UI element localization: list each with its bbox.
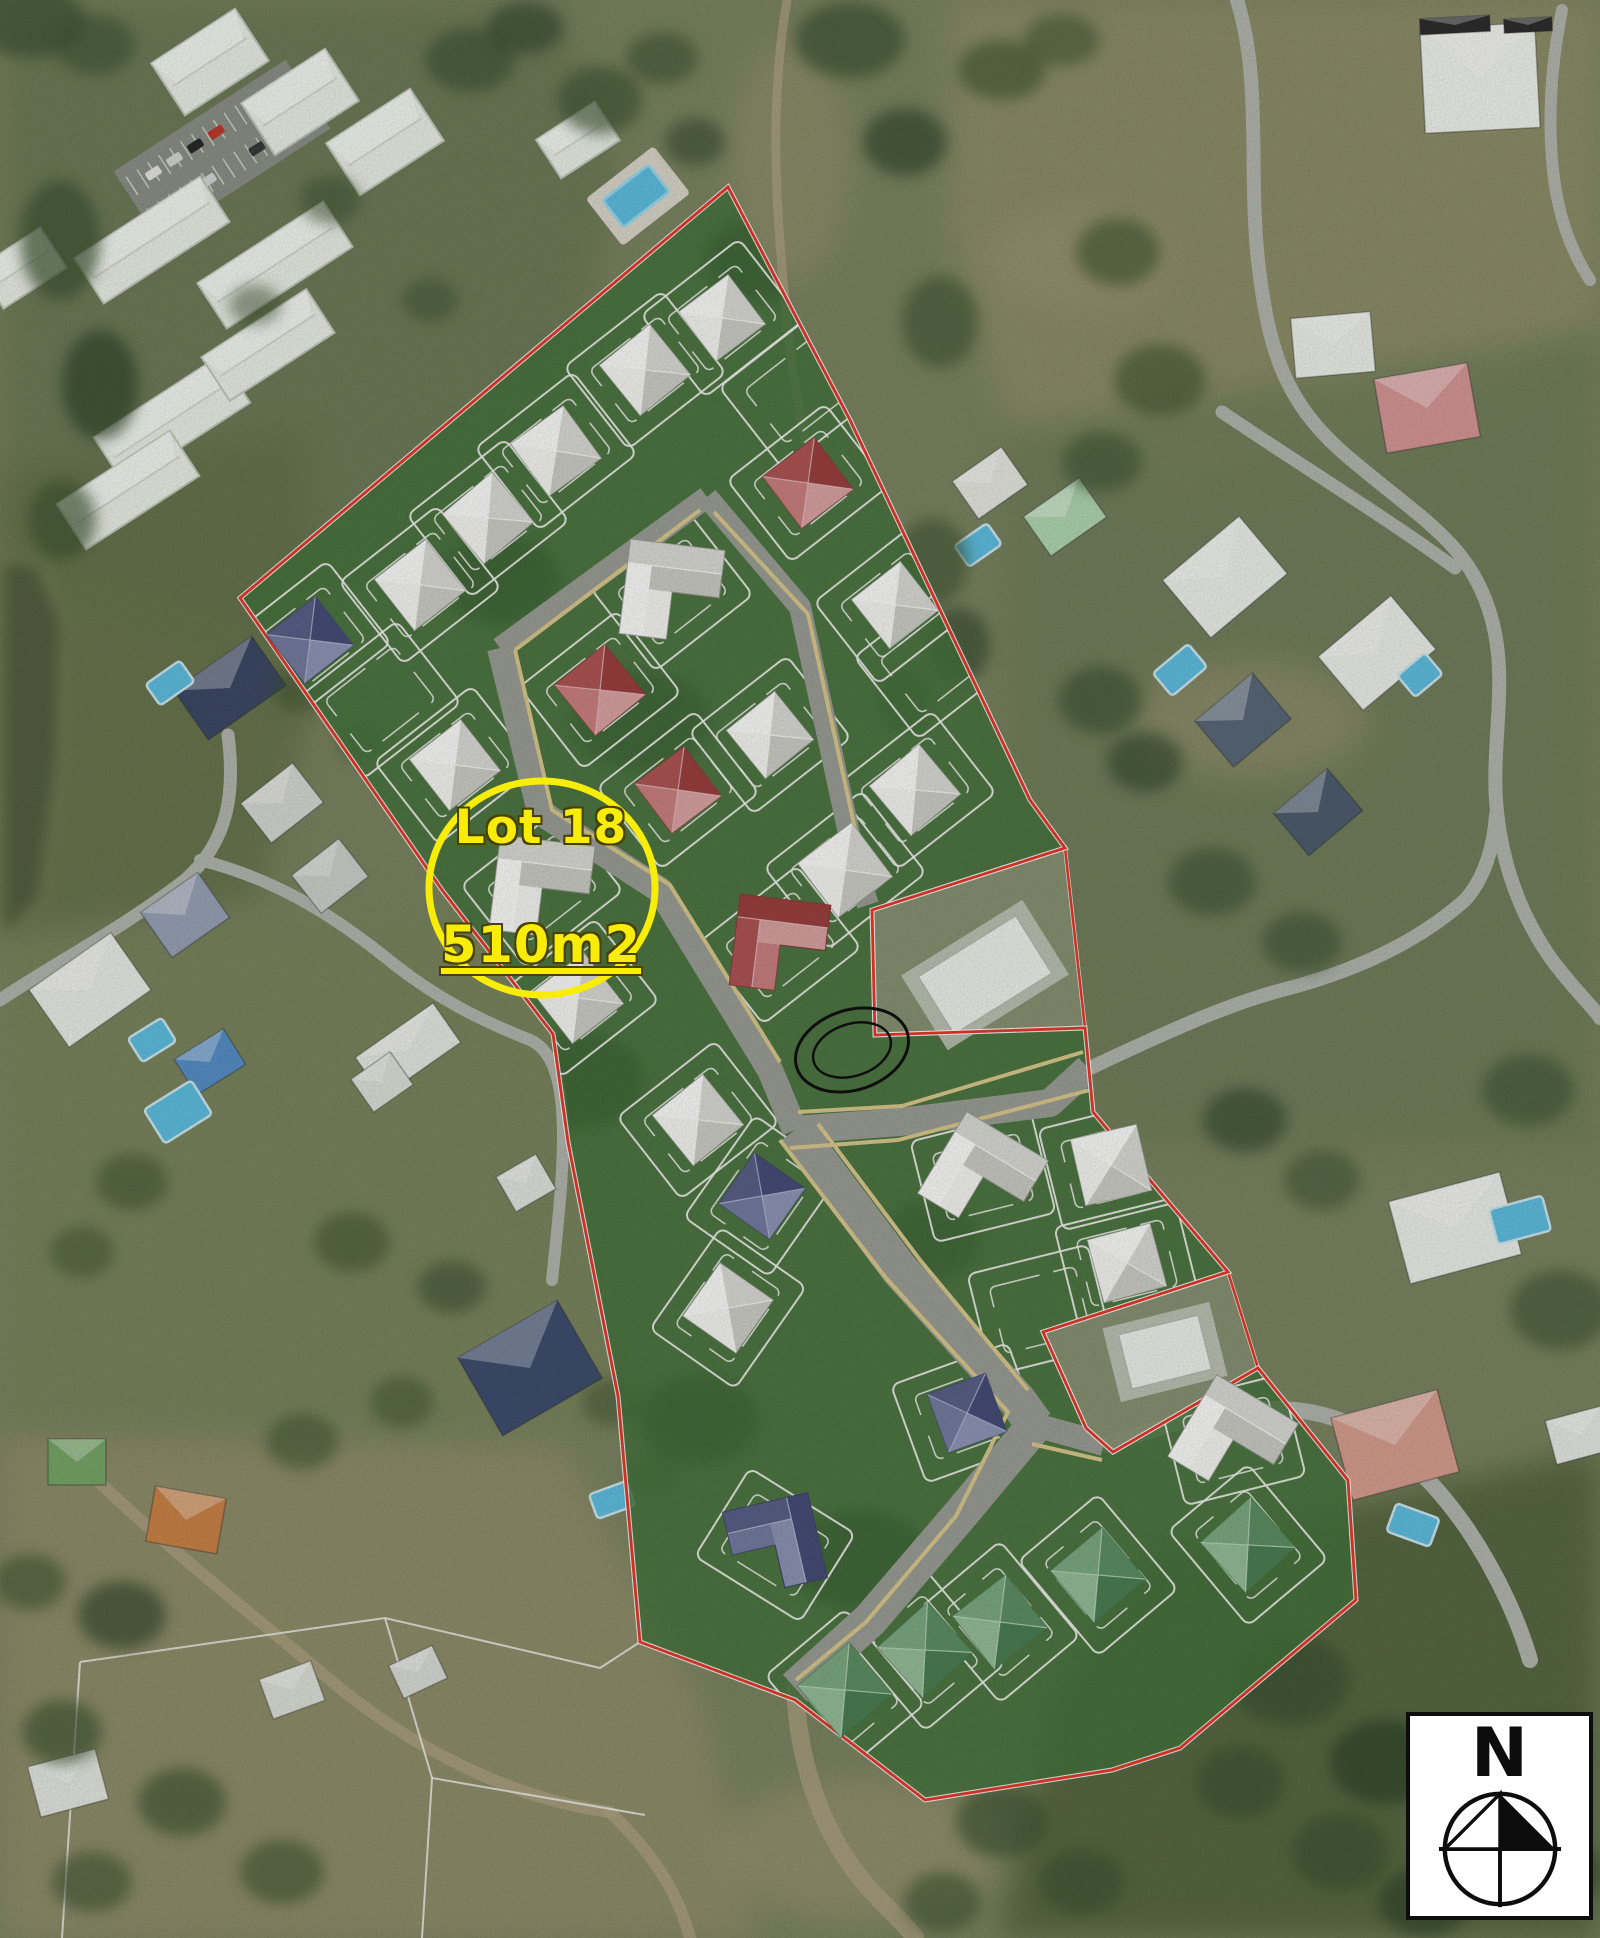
aerial-map	[0, 0, 1600, 1938]
lot-area-label: 510m2	[428, 920, 654, 971]
north-compass: N	[1406, 1712, 1593, 1920]
aerial-map-page: Lot 18 510m2 N	[0, 0, 1600, 1938]
lot-18-label: Lot 18	[428, 804, 654, 851]
compass-rose-icon	[1432, 1782, 1568, 1916]
north-label: N	[1471, 1720, 1528, 1788]
